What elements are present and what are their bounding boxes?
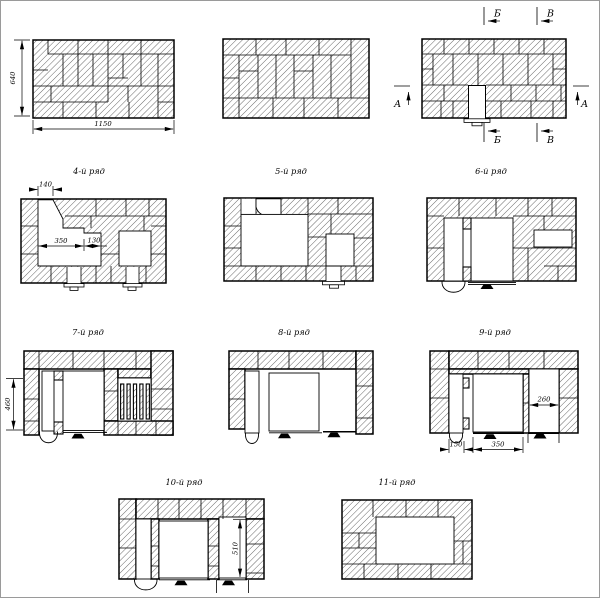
firebox-chamber [269, 373, 319, 431]
bottom-opening-left [67, 267, 81, 284]
course-7-plan: 7-й ряд 460 [4, 327, 173, 443]
section-label-v-top: В [546, 9, 554, 20]
door-swing-arc [442, 281, 465, 292]
course-2-plan [223, 39, 369, 118]
damper-symbol [175, 581, 188, 586]
section-label-b-top: Б [493, 9, 501, 20]
damper-symbol [72, 434, 85, 439]
course-title: 9-й ряд [479, 327, 511, 337]
stove-masonry-diagram: 640 1150 Б В Б В А А [0, 0, 600, 598]
dim-label-350: 350 [492, 441, 506, 449]
door-opening [42, 371, 54, 431]
width-dimension-label: 1150 [94, 120, 112, 128]
firebox-chamber [473, 374, 523, 432]
masonry-slab [223, 39, 369, 118]
dim-label-510: 510 [232, 541, 240, 555]
jamb-strip [151, 519, 159, 579]
beveled-brick [256, 199, 281, 216]
course-title: 8-й ряд [278, 327, 310, 337]
jamb-brick [463, 218, 471, 229]
ash-opening [469, 86, 486, 120]
right-chamber [326, 234, 354, 266]
course-title: 11-й ряд [379, 477, 416, 487]
firebox-chamber [63, 371, 104, 431]
section-label-a-left: А [393, 99, 401, 110]
course-6-plan: 6-й ряд [427, 166, 576, 292]
course-title: 6-й ряд [475, 166, 507, 176]
lintel [118, 369, 151, 378]
left-wall [24, 369, 39, 435]
section-label-v-bottom: В [546, 135, 554, 146]
door-frame-foot [70, 287, 78, 290]
bottom-wall [104, 421, 173, 435]
bottom-opening [326, 267, 341, 282]
right-wall [356, 351, 373, 434]
damper-symbol [328, 433, 341, 438]
flue-channel [534, 230, 572, 247]
mid-wall [104, 369, 118, 421]
damper-symbol [534, 434, 547, 439]
door-opening [136, 519, 151, 579]
course-8-plan: 8-й ряд [229, 327, 373, 444]
firebox-chamber [471, 218, 513, 281]
damper-symbol [481, 285, 494, 289]
left-wall [119, 499, 136, 579]
course-4-plan: 4-й ряд 140 350 130 [21, 166, 166, 290]
thin-course [449, 369, 529, 374]
door-swing-arc [245, 433, 258, 444]
course-5-plan: 5-й ряд [224, 166, 373, 288]
course-9-plan: 9-й ряд 260 150 350 [430, 327, 578, 453]
divider-wall [208, 519, 219, 579]
right-chamber [119, 231, 151, 266]
jamb-brick [54, 422, 63, 434]
top-wall [449, 351, 578, 369]
course-title: 4-й ряд [72, 166, 105, 176]
section-label-a-right: А [580, 99, 588, 110]
right-wall [246, 519, 264, 579]
bottom-opening-right [126, 267, 139, 284]
diagram-canvas: 640 1150 Б В Б В А А [1, 1, 599, 597]
door-frame-foot [128, 287, 136, 290]
height-dimension-label: 640 [9, 71, 17, 85]
section-label-b-bottom: Б [493, 135, 501, 146]
course-title: 7-й ряд [72, 327, 104, 337]
damper-symbol [278, 434, 291, 439]
door-frame-foot [472, 122, 482, 125]
jamb-brick [463, 378, 469, 388]
door-opening [444, 218, 463, 281]
top-wall [229, 351, 356, 369]
door-opening [449, 374, 463, 433]
left-wall [430, 351, 449, 433]
top-wall [136, 499, 264, 519]
damper-symbol [484, 434, 497, 439]
door-frame [464, 119, 490, 123]
top-notch [241, 199, 256, 215]
course-1-plan: 640 1150 [9, 40, 174, 134]
course-3-plan: Б В Б В А А [393, 7, 589, 146]
damper-symbol [222, 581, 235, 586]
dim-label-140: 140 [39, 181, 53, 189]
dim-label-460: 460 [4, 397, 12, 412]
door-frame [323, 281, 345, 284]
door-opening [245, 371, 259, 433]
floor-lines [468, 282, 516, 284]
dim-label-260: 260 [537, 396, 552, 404]
door-frame [123, 284, 142, 287]
flue-chamber [376, 517, 454, 564]
jamb-brick [463, 418, 469, 429]
jamb-brick [463, 267, 471, 281]
main-chamber [241, 214, 308, 266]
masonry-slab [33, 40, 174, 118]
course-11-plan: 11-й ряд [342, 477, 472, 579]
right-wall [559, 369, 578, 433]
course-title: 5-й ряд [275, 166, 307, 176]
course-title: 10-й ряд [166, 477, 203, 487]
dim-label-350: 350 [55, 237, 69, 245]
door-frame [64, 284, 84, 287]
divider-wall [523, 374, 529, 433]
firebox-chamber [159, 521, 208, 578]
jamb-brick [54, 371, 63, 380]
door-swing-arc [134, 579, 157, 590]
course-10-plan: 10-й ряд 510 [119, 477, 264, 593]
door-frame-foot [330, 285, 339, 288]
dim-label-130: 130 [88, 237, 102, 245]
dim-label-150: 150 [450, 441, 464, 449]
